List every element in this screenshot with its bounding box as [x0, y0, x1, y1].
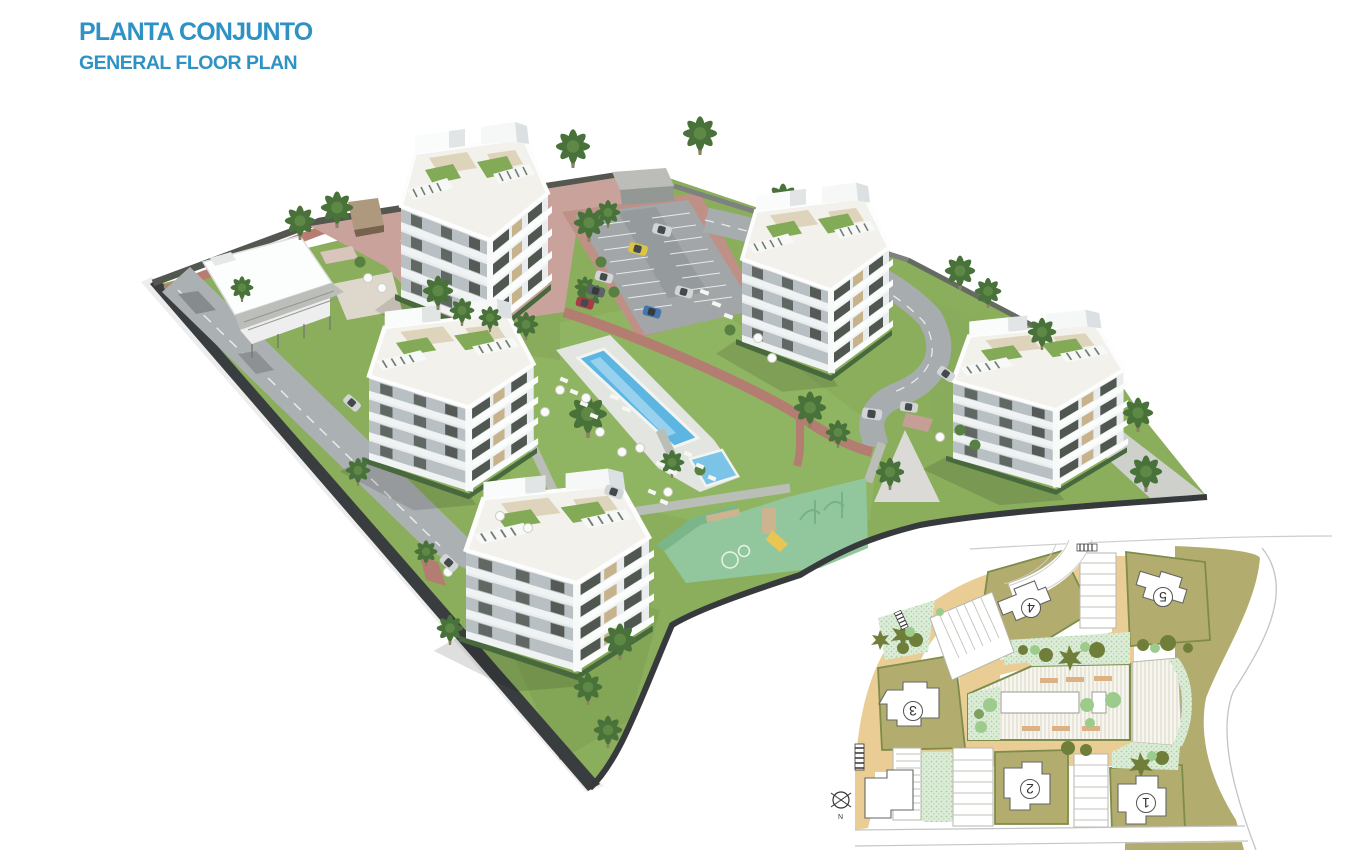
svg-text:N: N — [838, 814, 843, 821]
svg-text:3: 3 — [909, 703, 917, 719]
svg-text:5: 5 — [1159, 589, 1167, 605]
svg-text:2: 2 — [1026, 781, 1034, 797]
svg-text:1: 1 — [1142, 795, 1150, 811]
svg-text:4: 4 — [1027, 600, 1035, 616]
